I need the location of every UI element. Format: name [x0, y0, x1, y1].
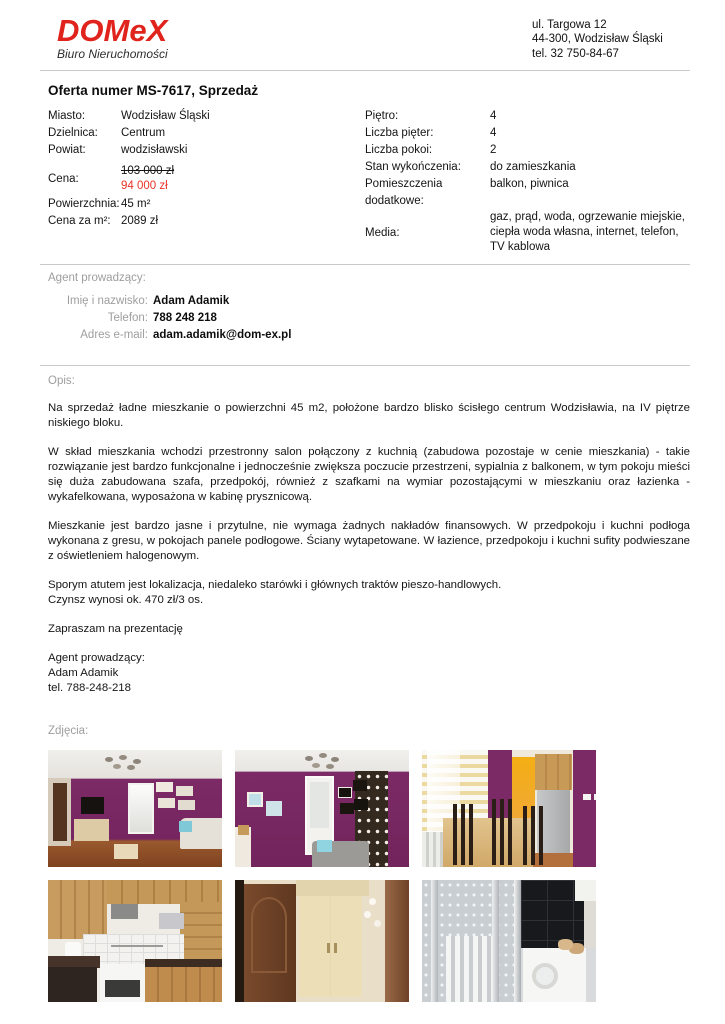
photo-shape: [431, 880, 438, 1002]
detail-label: Miasto:: [48, 108, 121, 125]
photo-shape: [532, 963, 558, 989]
photo-shape: [53, 783, 67, 842]
photo-living-room-1: [48, 750, 222, 867]
header: DOMeX Biuro Nieruchomości ul. Targowa 12…: [48, 16, 690, 61]
photo-shape: [299, 896, 362, 997]
agent-email: adam.adamik@dom-ex.pl: [153, 327, 291, 344]
detail-row-extra-rooms: Pomieszczenia dodatkowe: balkon, piwnica: [365, 176, 690, 210]
detail-label: Liczba pokoi:: [365, 142, 490, 159]
photo-shape: [523, 806, 544, 865]
detail-row-rooms: Liczba pokoi: 2: [365, 142, 690, 159]
photo-shape: [145, 967, 222, 1002]
detail-value: 4: [490, 108, 690, 125]
photo-shape: [48, 967, 97, 1002]
photo-shape: [74, 819, 109, 841]
description-section: Opis: Na sprzedaż ładne mieszkanie o pow…: [48, 375, 690, 696]
photo-shape: [583, 794, 591, 800]
detail-value: Centrum: [121, 125, 365, 142]
office-address: ul. Targowa 12 44-300, Wodzisław Śląski …: [532, 18, 690, 61]
price-new: 94 000 zł: [121, 179, 174, 194]
detail-row-price-per-m2: Cena za m²: 2089 zł: [48, 213, 365, 230]
detail-row-area: Powierzchnia: 45 m²: [48, 196, 365, 213]
offer-title: Oferta numer MS-7617, Sprzedaż: [48, 83, 690, 98]
photo-shape: [310, 782, 329, 829]
agent-section-label: Agent prowadzący:: [48, 272, 690, 284]
detail-row-county: Powiat: wodzisławski: [48, 142, 365, 159]
agent-label: Telefon:: [48, 310, 148, 327]
photo-shape: [338, 787, 352, 798]
agent-name: Adam Adamik: [153, 293, 229, 310]
photo-shape: [296, 880, 369, 896]
photo-shape: [81, 797, 104, 815]
agent-phone: 788 248 218: [153, 310, 217, 327]
detail-value: balkon, piwnica: [490, 176, 690, 210]
photo-shape: [65, 942, 81, 955]
detail-value: wodzisławski: [121, 142, 365, 159]
detail-label: Powierzchnia:: [48, 196, 121, 213]
photo-hallway: [235, 880, 409, 1002]
description-paragraph-1: Na sprzedaż ładne mieszkanie o powierzch…: [48, 401, 690, 431]
detail-value: 4: [490, 125, 690, 142]
photo-dining-kitchen: [422, 750, 596, 867]
description-closing: Zapraszam na prezentację: [48, 622, 690, 637]
photo-shape: [492, 799, 516, 865]
photo-shape: [105, 980, 140, 997]
address-line-3: tel. 32 750-84-67: [532, 47, 690, 61]
detail-label: Piętro:: [365, 108, 490, 125]
photo-shape: [107, 880, 222, 904]
detail-label: Dzielnica:: [48, 125, 121, 142]
photo-shape: [128, 783, 154, 834]
photo-shape: [514, 880, 521, 1002]
photo-shape: [558, 939, 574, 950]
divider-description: [40, 365, 690, 366]
photo-shape: [114, 844, 138, 859]
detail-label: Cena za m²:: [48, 213, 121, 230]
photo-shape: [111, 945, 163, 947]
address-line-1: ul. Targowa 12: [532, 18, 690, 32]
photo-shape: [111, 904, 139, 919]
detail-value: 2089 zł: [121, 213, 365, 230]
photo-shape: [446, 936, 495, 1002]
photo-kitchen: [48, 880, 222, 1002]
signature-block: Agent prowadzący: Adam Adamik tel. 788-2…: [48, 651, 690, 696]
detail-row-district: Dzielnica: Centrum: [48, 125, 365, 142]
photo-shape: [145, 959, 222, 966]
photo-living-room-2: [235, 750, 409, 867]
brand-name: DOMeX: [57, 16, 168, 46]
agent-label: Imię i nazwisko:: [48, 293, 148, 310]
agent-section: Agent prowadzący: Imię i nazwisko: Adam …: [48, 272, 690, 356]
offer-document: DOMeX Biuro Nieruchomości ul. Targowa 12…: [0, 0, 725, 1002]
detail-row-floor: Piętro: 4: [365, 108, 690, 125]
photo-shape: [159, 913, 183, 929]
agent-rows: Imię i nazwisko: Adam Adamik Telefon: 78…: [48, 293, 690, 344]
photo-shape: [573, 750, 596, 867]
detail-row-city: Miasto: Wodzisław Śląski: [48, 108, 365, 125]
description-paragraph-3: Mieszkanie jest bardzo jasne i przytulne…: [48, 519, 690, 564]
photo-bathroom: [422, 880, 596, 1002]
photo-shape: [584, 901, 596, 949]
price-values: 103 000 zł 94 000 zł: [121, 164, 174, 194]
description-section-label: Opis:: [48, 375, 690, 387]
agent-row-name: Imię i nazwisko: Adam Adamik: [48, 293, 690, 310]
photo-shape: [492, 880, 499, 1002]
detail-value: 45 m²: [121, 196, 365, 213]
divider-agent: [40, 264, 690, 265]
photo-shape: [327, 943, 330, 953]
detail-value: gaz, prąd, woda, ogrzewanie miejskie, ci…: [490, 210, 690, 255]
detail-row-price: Cena: 103 000 zł 94 000 zł: [48, 164, 365, 194]
photo-shape: [105, 757, 113, 762]
photo-shape: [317, 840, 333, 852]
photo-shape: [535, 754, 572, 790]
brand-logo: DOMeX Biuro Nieruchomości: [48, 16, 168, 61]
detail-label: Stan wykończenia:: [365, 159, 490, 176]
signature-line-2: Adam Adamik: [48, 666, 690, 681]
photo-row-2: [48, 880, 690, 1002]
detail-value: 2: [490, 142, 690, 159]
description-paragraph-4: Sporym atutem jest lokalizacja, niedalek…: [48, 578, 690, 593]
agent-row-phone: Telefon: 788 248 218: [48, 310, 690, 327]
photos-section: Zdjęcia:: [48, 725, 690, 1002]
photo-shape: [235, 880, 244, 1002]
brand-subtitle: Biuro Nieruchomości: [57, 47, 168, 61]
agent-label: Adres e-mail:: [48, 327, 148, 344]
description-paragraph-2: W skład mieszkania wchodzi przestronny s…: [48, 445, 690, 505]
detail-row-floors-total: Liczba pięter: 4: [365, 125, 690, 142]
detail-label: Cena:: [48, 173, 121, 185]
details-left-column: Miasto: Wodzisław Śląski Dzielnica: Cent…: [48, 108, 365, 230]
signature-line-1: Agent prowadzący:: [48, 651, 690, 666]
property-details: Miasto: Wodzisław Śląski Dzielnica: Cent…: [48, 108, 690, 255]
detail-label: Media:: [365, 227, 490, 239]
photo-shape: [251, 897, 288, 973]
photo-shape: [179, 821, 193, 832]
photo-shape: [575, 880, 596, 901]
photo-shape: [453, 804, 474, 865]
detail-row-media: Media: gaz, prąd, woda, ogrzewanie miejs…: [365, 210, 690, 255]
details-right-column: Piętro: 4 Liczba pięter: 4 Liczba pokoi:…: [365, 108, 690, 255]
address-line-2: 44-300, Wodzisław Śląski: [532, 32, 690, 46]
photo-row-1: [48, 750, 690, 867]
description-paragraph-5: Czynsz wynosi ok. 470 zł/3 os.: [48, 593, 690, 608]
detail-value: Wodzisław Śląski: [121, 108, 365, 125]
photo-shape: [247, 792, 263, 807]
agent-row-email: Adres e-mail: adam.adamik@dom-ex.pl: [48, 327, 690, 344]
photo-shape: [305, 756, 313, 761]
detail-label: Pomieszczenia dodatkowe:: [365, 176, 490, 210]
photo-shape: [156, 782, 173, 793]
price-old: 103 000 zł: [121, 164, 174, 179]
detail-row-condition: Stan wykończenia: do zamieszkania: [365, 159, 690, 176]
detail-label: Liczba pięter:: [365, 125, 490, 142]
photo-shape: [48, 880, 107, 939]
detail-value: do zamieszkania: [490, 159, 690, 176]
photos-section-label: Zdjęcia:: [48, 725, 690, 737]
signature-line-3: tel. 788-248-218: [48, 681, 690, 696]
detail-label: Powiat:: [48, 142, 121, 159]
photo-shape: [385, 880, 409, 1002]
photo-shape: [238, 825, 248, 836]
photo-shape: [369, 898, 376, 905]
divider-top: [40, 70, 690, 71]
